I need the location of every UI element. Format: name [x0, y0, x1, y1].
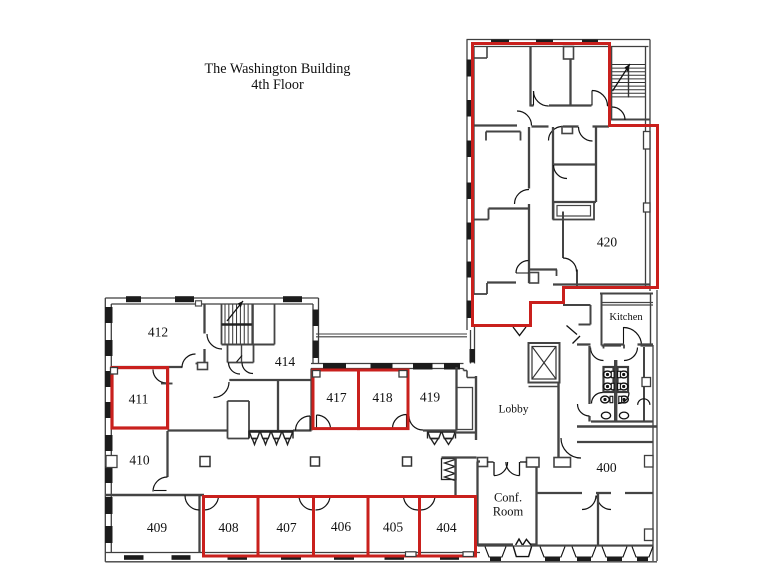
- svg-text:409: 409: [147, 520, 168, 535]
- svg-text:Kitchen: Kitchen: [609, 312, 643, 323]
- svg-text:414: 414: [275, 354, 296, 369]
- svg-text:400: 400: [596, 460, 617, 475]
- svg-text:408: 408: [218, 520, 239, 535]
- svg-text:419: 419: [420, 390, 441, 405]
- svg-text:417: 417: [326, 390, 347, 405]
- svg-text:4th Floor: 4th Floor: [251, 77, 304, 93]
- svg-text:407: 407: [276, 520, 297, 535]
- svg-text:406: 406: [331, 519, 352, 534]
- svg-text:405: 405: [383, 520, 404, 535]
- svg-text:412: 412: [148, 325, 168, 340]
- svg-text:The Washington Building: The Washington Building: [205, 61, 351, 77]
- svg-text:Conf.: Conf.: [494, 491, 522, 505]
- svg-text:Lobby: Lobby: [498, 404, 528, 416]
- svg-text:410: 410: [129, 453, 150, 468]
- svg-text:404: 404: [436, 520, 457, 535]
- svg-text:418: 418: [372, 390, 393, 405]
- svg-text:411: 411: [129, 392, 149, 407]
- svg-text:420: 420: [597, 235, 618, 250]
- svg-text:Room: Room: [493, 505, 524, 519]
